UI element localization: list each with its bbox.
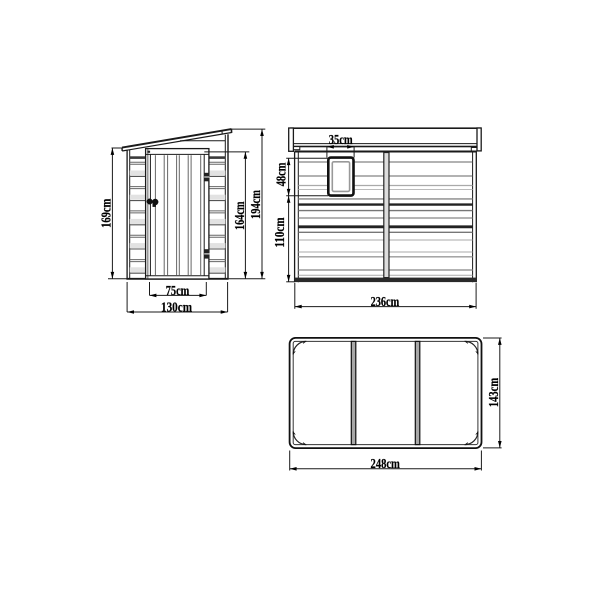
svg-text:130cm: 130cm [161, 300, 192, 315]
svg-text:248cm: 248cm [371, 456, 400, 471]
svg-text:194cm: 194cm [248, 190, 263, 219]
svg-text:236cm: 236cm [371, 294, 400, 309]
svg-text:110cm: 110cm [272, 218, 287, 248]
svg-text:35cm: 35cm [329, 132, 353, 147]
svg-text:48cm: 48cm [274, 163, 289, 187]
svg-text:164cm: 164cm [232, 201, 247, 230]
svg-text:75cm: 75cm [166, 283, 190, 298]
svg-text:169cm: 169cm [99, 199, 114, 228]
svg-text:143cm: 143cm [486, 378, 501, 407]
